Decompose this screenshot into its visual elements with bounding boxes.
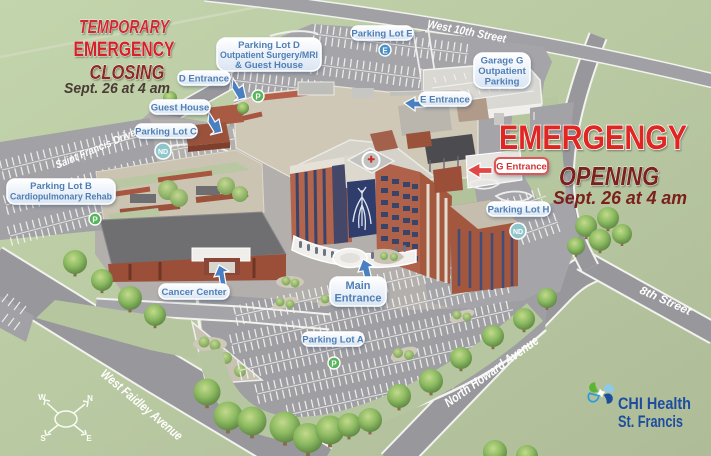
- svg-text:Garage G: Garage G: [481, 56, 524, 67]
- svg-text:E: E: [382, 47, 388, 56]
- svg-text:Outpatient: Outpatient: [478, 66, 526, 77]
- svg-text:ND: ND: [158, 149, 168, 156]
- svg-text:Parking: Parking: [485, 77, 520, 88]
- svg-text:OPENING: OPENING: [559, 161, 659, 191]
- svg-text:E Entrance: E Entrance: [420, 95, 470, 106]
- svg-text:Main: Main: [345, 280, 370, 292]
- svg-text:& Guest House: & Guest House: [235, 60, 303, 71]
- svg-text:G Entrance: G Entrance: [496, 162, 547, 173]
- svg-text:TEMPORARY: TEMPORARY: [79, 17, 171, 37]
- svg-text:St. Francis: St. Francis: [618, 413, 683, 431]
- svg-text:P: P: [92, 216, 98, 225]
- svg-text:P: P: [331, 360, 337, 369]
- svg-text:S: S: [40, 434, 46, 443]
- svg-text:N: N: [87, 394, 93, 403]
- svg-text:D Entrance: D Entrance: [179, 74, 229, 85]
- svg-text:ND: ND: [513, 229, 523, 236]
- svg-text:Sept. 26 at 4 am: Sept. 26 at 4 am: [553, 188, 687, 208]
- svg-text:Guest House: Guest House: [151, 103, 210, 114]
- svg-text:Parking Lot C: Parking Lot C: [135, 127, 197, 138]
- svg-text:Entrance: Entrance: [334, 293, 381, 305]
- svg-text:E: E: [86, 434, 92, 443]
- svg-text:Parking Lot B: Parking Lot B: [30, 181, 92, 192]
- svg-text:EMERGENGY: EMERGENGY: [499, 119, 687, 157]
- svg-text:CHI Health: CHI Health: [618, 395, 691, 413]
- svg-text:Cancer Center: Cancer Center: [162, 287, 227, 298]
- svg-text:Cardiopulmonary Rehab: Cardiopulmonary Rehab: [10, 192, 112, 203]
- svg-text:W: W: [38, 393, 46, 402]
- svg-text:P: P: [255, 93, 261, 102]
- svg-text:Sept. 26 at 4 am: Sept. 26 at 4 am: [64, 81, 170, 97]
- svg-text:Parking Lot H: Parking Lot H: [488, 205, 550, 216]
- svg-text:Parking Lot A: Parking Lot A: [302, 335, 364, 346]
- svg-text:EMERGENCY: EMERGENCY: [74, 38, 175, 61]
- svg-text:Parking Lot E: Parking Lot E: [351, 29, 412, 40]
